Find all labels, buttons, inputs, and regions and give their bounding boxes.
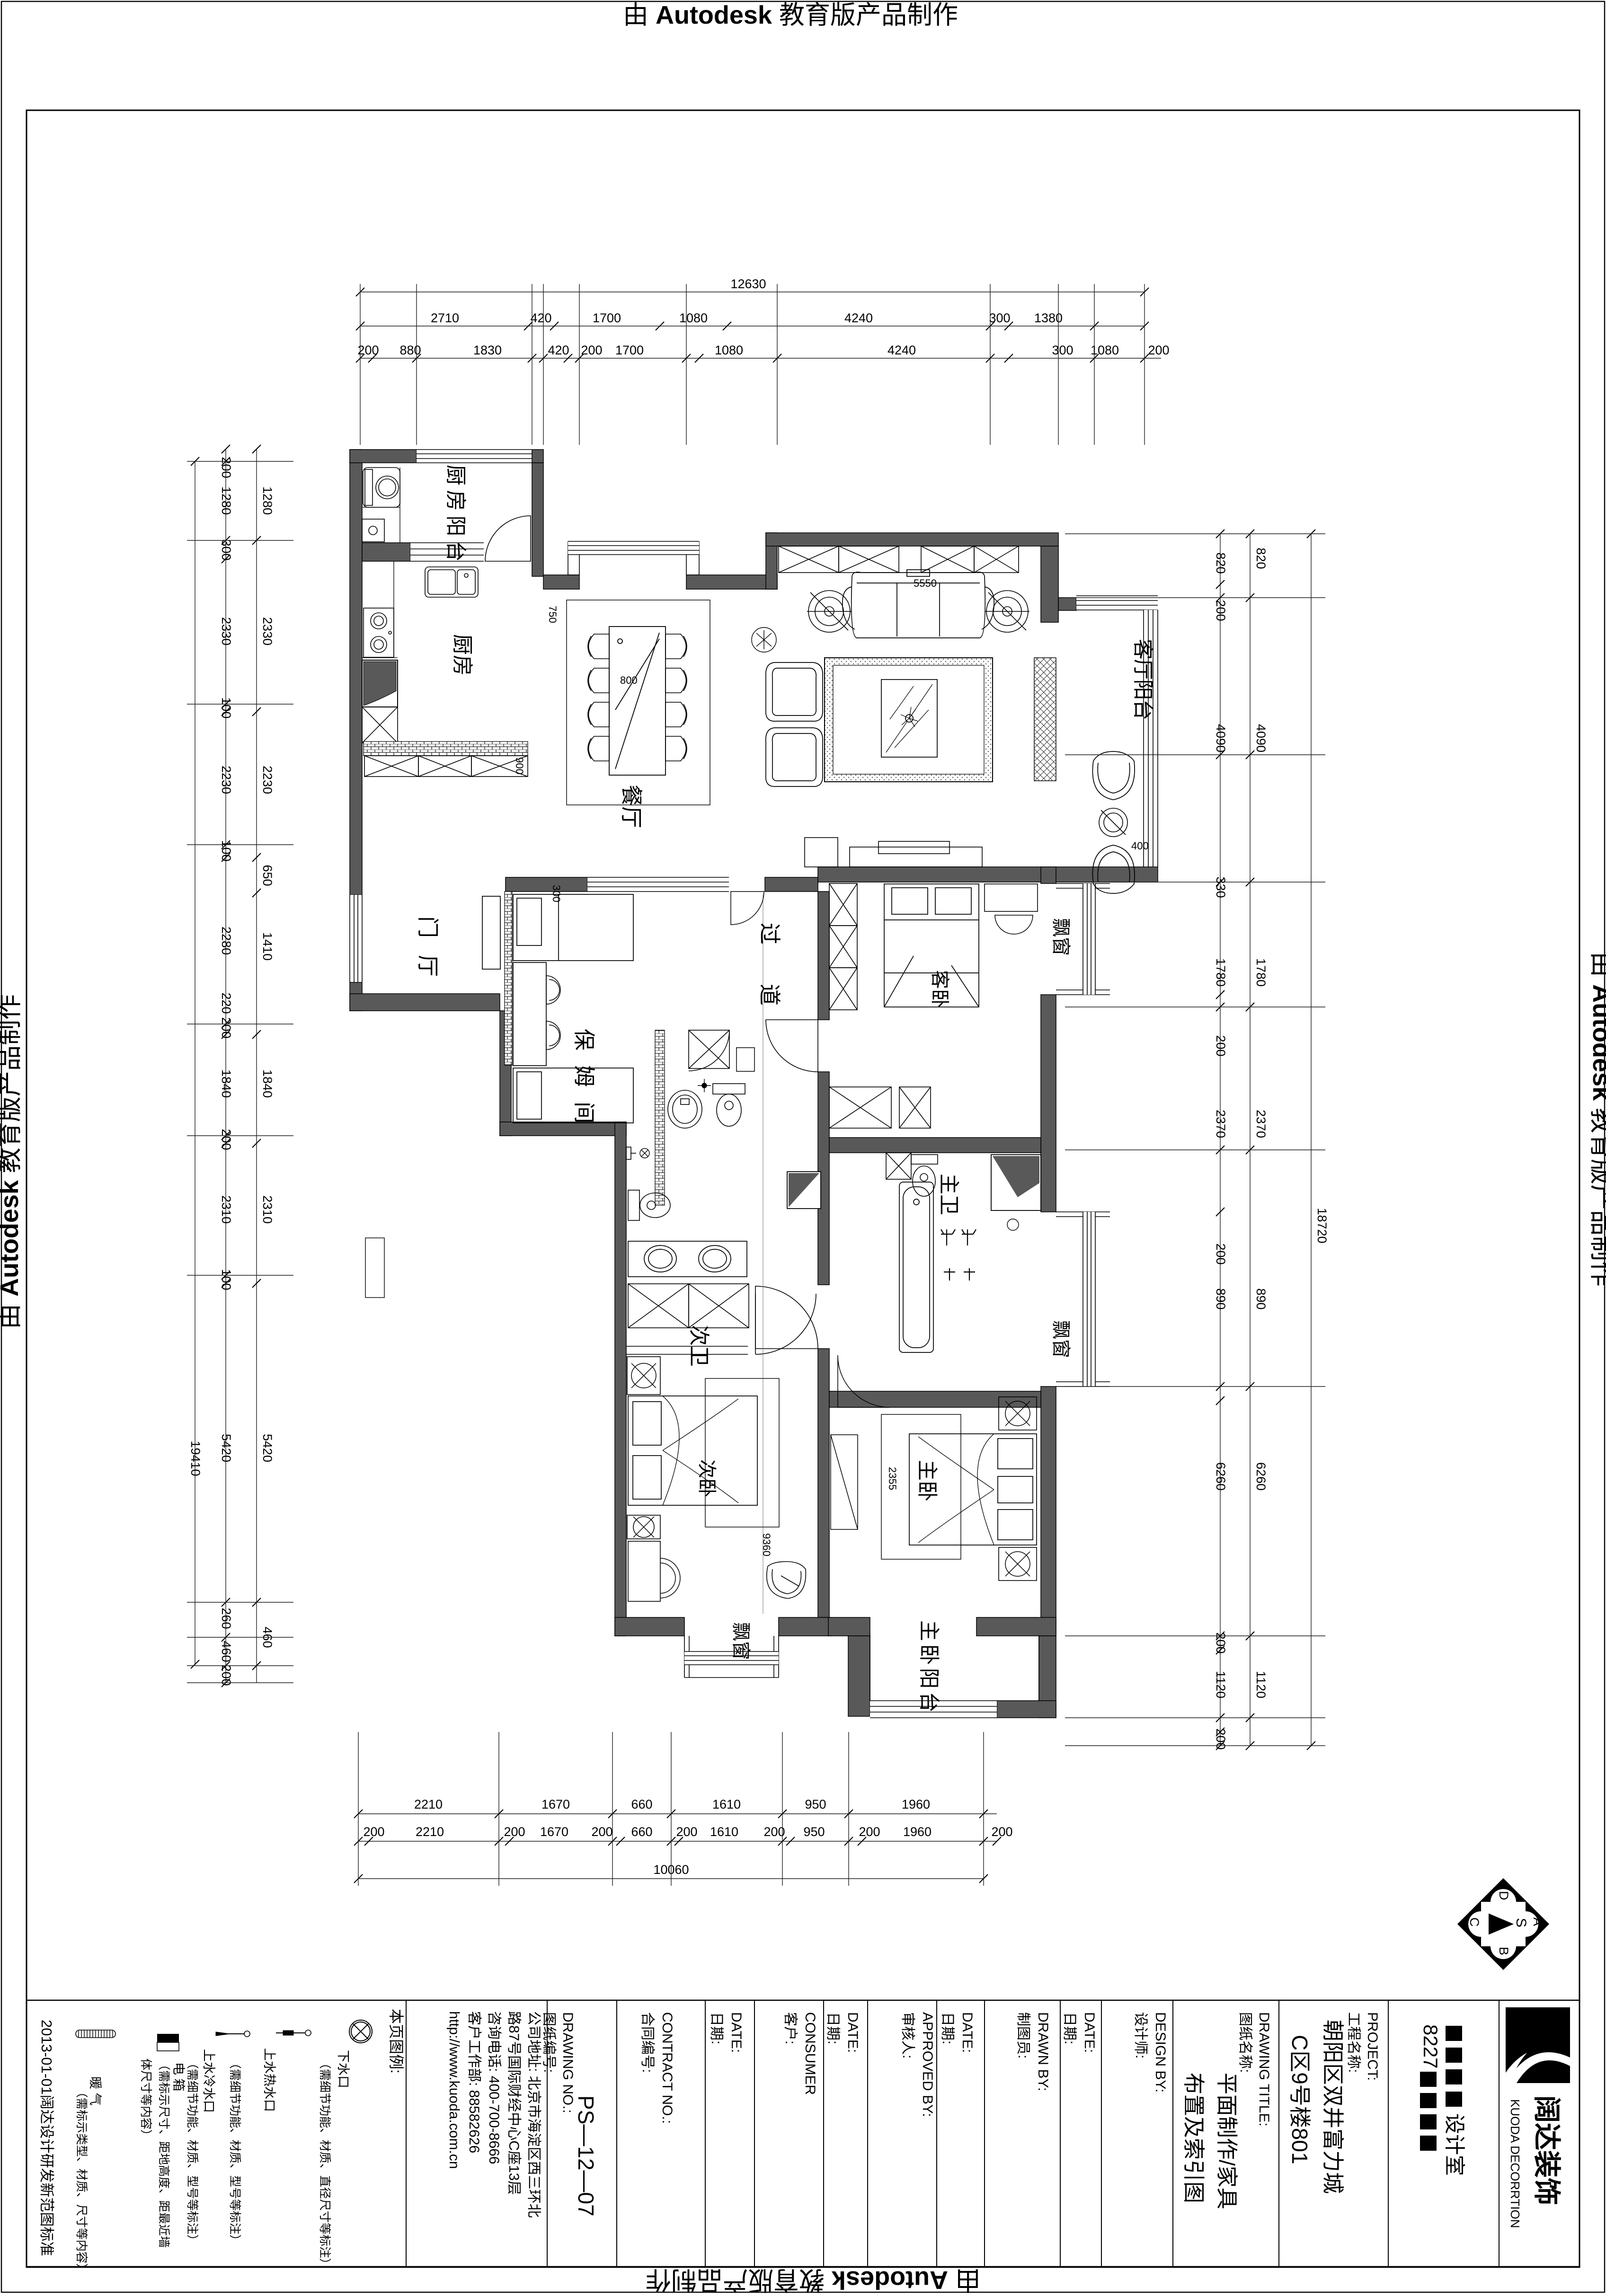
- svg-text:S: S: [1513, 1918, 1529, 1927]
- svg-text:客卧: 客卧: [929, 970, 950, 1008]
- svg-text:飘窗: 飘窗: [730, 1622, 751, 1660]
- svg-text:2013-01-01阔达设计研发新范图标准: 2013-01-01阔达设计研发新范图标准: [38, 2020, 55, 2256]
- svg-text:100: 100: [219, 840, 233, 861]
- svg-text:暖 气: 暖 气: [88, 2076, 102, 2106]
- svg-text:主卫: 主卫: [937, 1174, 960, 1215]
- svg-text:1700: 1700: [615, 343, 644, 357]
- svg-text:300: 300: [550, 885, 562, 902]
- svg-text:主卧: 主卧: [915, 1460, 939, 1501]
- svg-text:合同编号:: 合同编号:: [639, 2012, 655, 2073]
- svg-text:460: 460: [219, 1641, 233, 1662]
- svg-text:200: 200: [991, 1825, 1012, 1839]
- svg-text:330: 330: [1214, 876, 1228, 898]
- svg-text:朝阳区双井富力城: 朝阳区双井富力城: [1321, 2020, 1345, 2194]
- svg-text:200: 200: [1214, 1728, 1228, 1749]
- svg-text:CONSUMER: CONSUMER: [802, 2012, 818, 2095]
- svg-text:本页图例:: 本页图例:: [388, 2009, 405, 2074]
- svg-text:（需细节功能、材质、直径尺寸等标注）: （需细节功能、材质、直径尺寸等标注）: [318, 2057, 331, 2270]
- svg-text:2230: 2230: [219, 766, 233, 794]
- svg-text:（需标示类型、材质、尺寸等内容）: （需标示类型、材质、尺寸等内容）: [75, 2086, 88, 2275]
- svg-text:保姆间: 保姆间: [572, 1029, 596, 1123]
- svg-text:咨询电话: 400-700-8666: 咨询电话: 400-700-8666: [486, 2011, 502, 2164]
- svg-text:4240: 4240: [887, 343, 916, 357]
- svg-text:1840: 1840: [219, 1069, 233, 1098]
- svg-text:6260: 6260: [1254, 1462, 1268, 1491]
- svg-text:800: 800: [620, 674, 638, 686]
- svg-text:平面制作/家具: 平面制作/家具: [1215, 2073, 1239, 2209]
- svg-text:820: 820: [1254, 548, 1268, 569]
- svg-text:200: 200: [219, 1017, 233, 1038]
- svg-text:1610: 1610: [710, 1825, 738, 1839]
- svg-text:飘窗: 飘窗: [1050, 1320, 1071, 1358]
- svg-text:（需细节功能、材质、型号等标注）: （需细节功能、材质、型号等标注）: [228, 2057, 241, 2246]
- svg-text:图纸名称:: 图纸名称:: [1237, 2012, 1253, 2073]
- svg-text:950: 950: [803, 1825, 825, 1839]
- svg-text:由 Autodesk 教育版产品制作: 由 Autodesk 教育版产品制作: [646, 2266, 981, 2294]
- svg-text:200: 200: [219, 457, 233, 478]
- svg-text:APPROVED BY:: APPROVED BY:: [920, 2012, 935, 2117]
- svg-text:9360: 9360: [761, 1533, 772, 1556]
- svg-text:B: B: [1497, 1947, 1511, 1955]
- svg-text:5550: 5550: [914, 577, 937, 589]
- svg-text:750: 750: [547, 606, 559, 623]
- svg-text:上水热水口: 上水热水口: [262, 2048, 276, 2112]
- svg-text:1780: 1780: [1254, 958, 1268, 987]
- svg-text:制图员:: 制图员:: [1015, 2012, 1031, 2058]
- svg-text:420: 420: [530, 311, 551, 325]
- svg-text:CONTRACT NO.:: CONTRACT NO.:: [659, 2012, 675, 2124]
- svg-text:审核人:: 审核人:: [900, 2012, 915, 2058]
- svg-text:DATE:: DATE:: [1082, 2012, 1097, 2053]
- svg-text:200: 200: [591, 1825, 612, 1839]
- svg-text:次卧: 次卧: [696, 1459, 717, 1497]
- svg-text:8227: 8227: [1420, 2024, 1442, 2068]
- svg-text:220: 220: [219, 992, 233, 1014]
- svg-text:2210: 2210: [414, 1797, 443, 1811]
- svg-text:200: 200: [1214, 1243, 1228, 1264]
- svg-text:由 Autodesk 教育版产品制作: 由 Autodesk 教育版产品制作: [0, 994, 24, 1329]
- svg-text:设计室: 设计室: [1443, 2113, 1466, 2176]
- svg-text:300: 300: [989, 311, 1010, 325]
- svg-text:1080: 1080: [1091, 343, 1119, 357]
- svg-text:19410: 19410: [188, 1440, 203, 1476]
- svg-text:日期:: 日期:: [1062, 2012, 1077, 2044]
- svg-text:体尺寸等内容）: 体尺寸等内容）: [139, 2058, 152, 2141]
- svg-text:420: 420: [548, 343, 569, 357]
- svg-text:1670: 1670: [540, 1825, 568, 1839]
- svg-text:布置及索引图: 布置及索引图: [1181, 2073, 1206, 2203]
- svg-text:100: 100: [219, 1269, 233, 1290]
- svg-text:（需标示尺寸、距地高度、距最近墙: （需标示尺寸、距地高度、距最近墙: [157, 2058, 170, 2248]
- svg-text:飘窗: 飘窗: [1050, 918, 1071, 956]
- svg-text:1120: 1120: [1214, 1671, 1228, 1698]
- svg-text:（需细节功能、材质、型号等标注）: （需细节功能、材质、型号等标注）: [186, 2057, 199, 2246]
- svg-text:200: 200: [1214, 600, 1228, 621]
- svg-text:次卫: 次卫: [687, 1325, 710, 1367]
- svg-text:4090: 4090: [1214, 724, 1228, 752]
- svg-text:200: 200: [1214, 1035, 1228, 1056]
- svg-text:6260: 6260: [1214, 1462, 1228, 1491]
- svg-text:4240: 4240: [844, 311, 873, 325]
- svg-text:200: 200: [859, 1825, 880, 1839]
- svg-text:工程名称:: 工程名称:: [1346, 2012, 1361, 2073]
- svg-text:DRAWN BY:: DRAWN BY:: [1035, 2012, 1051, 2091]
- svg-text:DATE:: DATE:: [959, 2012, 975, 2053]
- svg-text:12630: 12630: [730, 277, 766, 291]
- svg-text:餐厅: 餐厅: [619, 785, 644, 828]
- svg-text:图纸编号:: 图纸编号:: [541, 2012, 557, 2073]
- svg-text:DRAWING TITLE:: DRAWING TITLE:: [1256, 2012, 1272, 2127]
- svg-text:660: 660: [631, 1825, 652, 1839]
- svg-text:2310: 2310: [260, 1195, 275, 1224]
- svg-text:客户工作部: 88582626: 客户工作部: 88582626: [466, 2011, 482, 2153]
- svg-text:2370: 2370: [1254, 1110, 1268, 1138]
- svg-text:950: 950: [805, 1797, 826, 1811]
- svg-text:300: 300: [219, 539, 233, 560]
- svg-text:2230: 2230: [260, 766, 275, 794]
- svg-text:电 箱: 电 箱: [171, 2062, 186, 2092]
- svg-text:2310: 2310: [219, 1195, 233, 1224]
- svg-text:200: 200: [219, 1129, 233, 1150]
- svg-text:5420: 5420: [219, 1434, 233, 1462]
- svg-text:2330: 2330: [260, 617, 275, 645]
- svg-text:1670: 1670: [541, 1797, 570, 1811]
- svg-text:日期:: 日期:: [709, 2012, 724, 2044]
- svg-text:1080: 1080: [715, 343, 743, 357]
- svg-text:阔达装饰: 阔达装饰: [1531, 2095, 1562, 2205]
- svg-text:由 Autodesk 教育版产品制作: 由 Autodesk 教育版产品制作: [1588, 952, 1606, 1287]
- svg-text:2710: 2710: [431, 311, 459, 325]
- svg-text:2210: 2210: [416, 1825, 444, 1839]
- svg-text:200: 200: [763, 1825, 785, 1839]
- svg-text:890: 890: [1254, 1288, 1268, 1309]
- svg-text:18720: 18720: [1315, 1208, 1329, 1243]
- svg-text:由 Autodesk 教育版产品制作: 由 Autodesk 教育版产品制作: [623, 1, 958, 29]
- svg-text:设计师:: 设计师:: [1133, 2012, 1148, 2058]
- svg-text:900: 900: [514, 757, 525, 775]
- svg-text:890: 890: [1214, 1288, 1228, 1309]
- svg-text:DATE:: DATE:: [728, 2012, 744, 2053]
- svg-text:客厅阳台: 客厅阳台: [1131, 639, 1154, 720]
- svg-text:660: 660: [631, 1797, 652, 1811]
- svg-text:C区9号楼801: C区9号楼801: [1287, 2035, 1312, 2164]
- svg-text:1610: 1610: [712, 1797, 741, 1811]
- svg-text:1830: 1830: [473, 343, 502, 357]
- svg-text:880: 880: [399, 343, 421, 357]
- svg-text:1840: 1840: [260, 1069, 275, 1098]
- svg-text:上水冷水口: 上水冷水口: [202, 2049, 216, 2113]
- svg-text:260: 260: [219, 1607, 233, 1629]
- svg-text:200: 200: [1148, 343, 1169, 357]
- svg-text:1410: 1410: [260, 932, 275, 961]
- svg-text:PROJECT:: PROJECT:: [1365, 2012, 1380, 2081]
- svg-text:2280: 2280: [219, 927, 233, 955]
- svg-text:1960: 1960: [902, 1797, 930, 1811]
- svg-text:2330: 2330: [219, 617, 233, 645]
- svg-text:PS—12—07: PS—12—07: [574, 2095, 598, 2217]
- svg-text:A: A: [1531, 1917, 1545, 1926]
- svg-text:1700: 1700: [593, 311, 621, 325]
- svg-text:KUODA DECORRTION: KUODA DECORRTION: [1508, 2099, 1522, 2228]
- svg-text:1080: 1080: [679, 311, 708, 325]
- svg-text:路87号国际财经中心C座13层: 路87号国际财经中心C座13层: [506, 2011, 522, 2195]
- svg-text:厨房: 厨房: [451, 634, 474, 676]
- svg-text:1280: 1280: [260, 486, 275, 515]
- svg-text:4090: 4090: [1254, 724, 1268, 752]
- svg-text:5420: 5420: [260, 1434, 275, 1462]
- svg-text:D: D: [1497, 1891, 1511, 1900]
- svg-text:DRAWING NO.:: DRAWING NO.:: [560, 2012, 576, 2113]
- svg-text:300: 300: [1052, 343, 1073, 357]
- svg-text:200: 200: [363, 1825, 384, 1839]
- svg-text:200: 200: [504, 1825, 525, 1839]
- svg-text:650: 650: [260, 865, 275, 886]
- svg-text:日期:: 日期:: [940, 2012, 955, 2044]
- svg-text:http://www.kuoda.com.cn: http://www.kuoda.com.cn: [446, 2011, 462, 2169]
- svg-text:820: 820: [1214, 552, 1228, 574]
- svg-text:1120: 1120: [1254, 1671, 1268, 1698]
- svg-text:200: 200: [357, 343, 379, 357]
- svg-text:日期:: 日期:: [825, 2012, 841, 2044]
- svg-text:DATE:: DATE:: [845, 2012, 861, 2053]
- svg-text:1960: 1960: [903, 1825, 932, 1839]
- svg-text:2355: 2355: [887, 1467, 898, 1490]
- svg-text:1280: 1280: [219, 486, 233, 515]
- svg-text:公司地址: 北京市海淀区西三环北: 公司地址: 北京市海淀区西三环北: [526, 2011, 541, 2218]
- svg-text:100: 100: [219, 697, 233, 718]
- svg-text:2370: 2370: [1214, 1110, 1228, 1138]
- svg-text:1780: 1780: [1214, 958, 1228, 987]
- svg-text:200: 200: [676, 1825, 697, 1839]
- svg-text:400: 400: [1131, 840, 1149, 852]
- svg-text:下水口: 下水口: [336, 2050, 350, 2088]
- svg-text:C: C: [1467, 1917, 1482, 1927]
- svg-text:客户:: 客户:: [782, 2012, 798, 2044]
- svg-text:DESIGN BY:: DESIGN BY:: [1153, 2012, 1168, 2093]
- svg-text:200: 200: [1214, 1632, 1228, 1653]
- svg-text:200: 200: [581, 343, 602, 357]
